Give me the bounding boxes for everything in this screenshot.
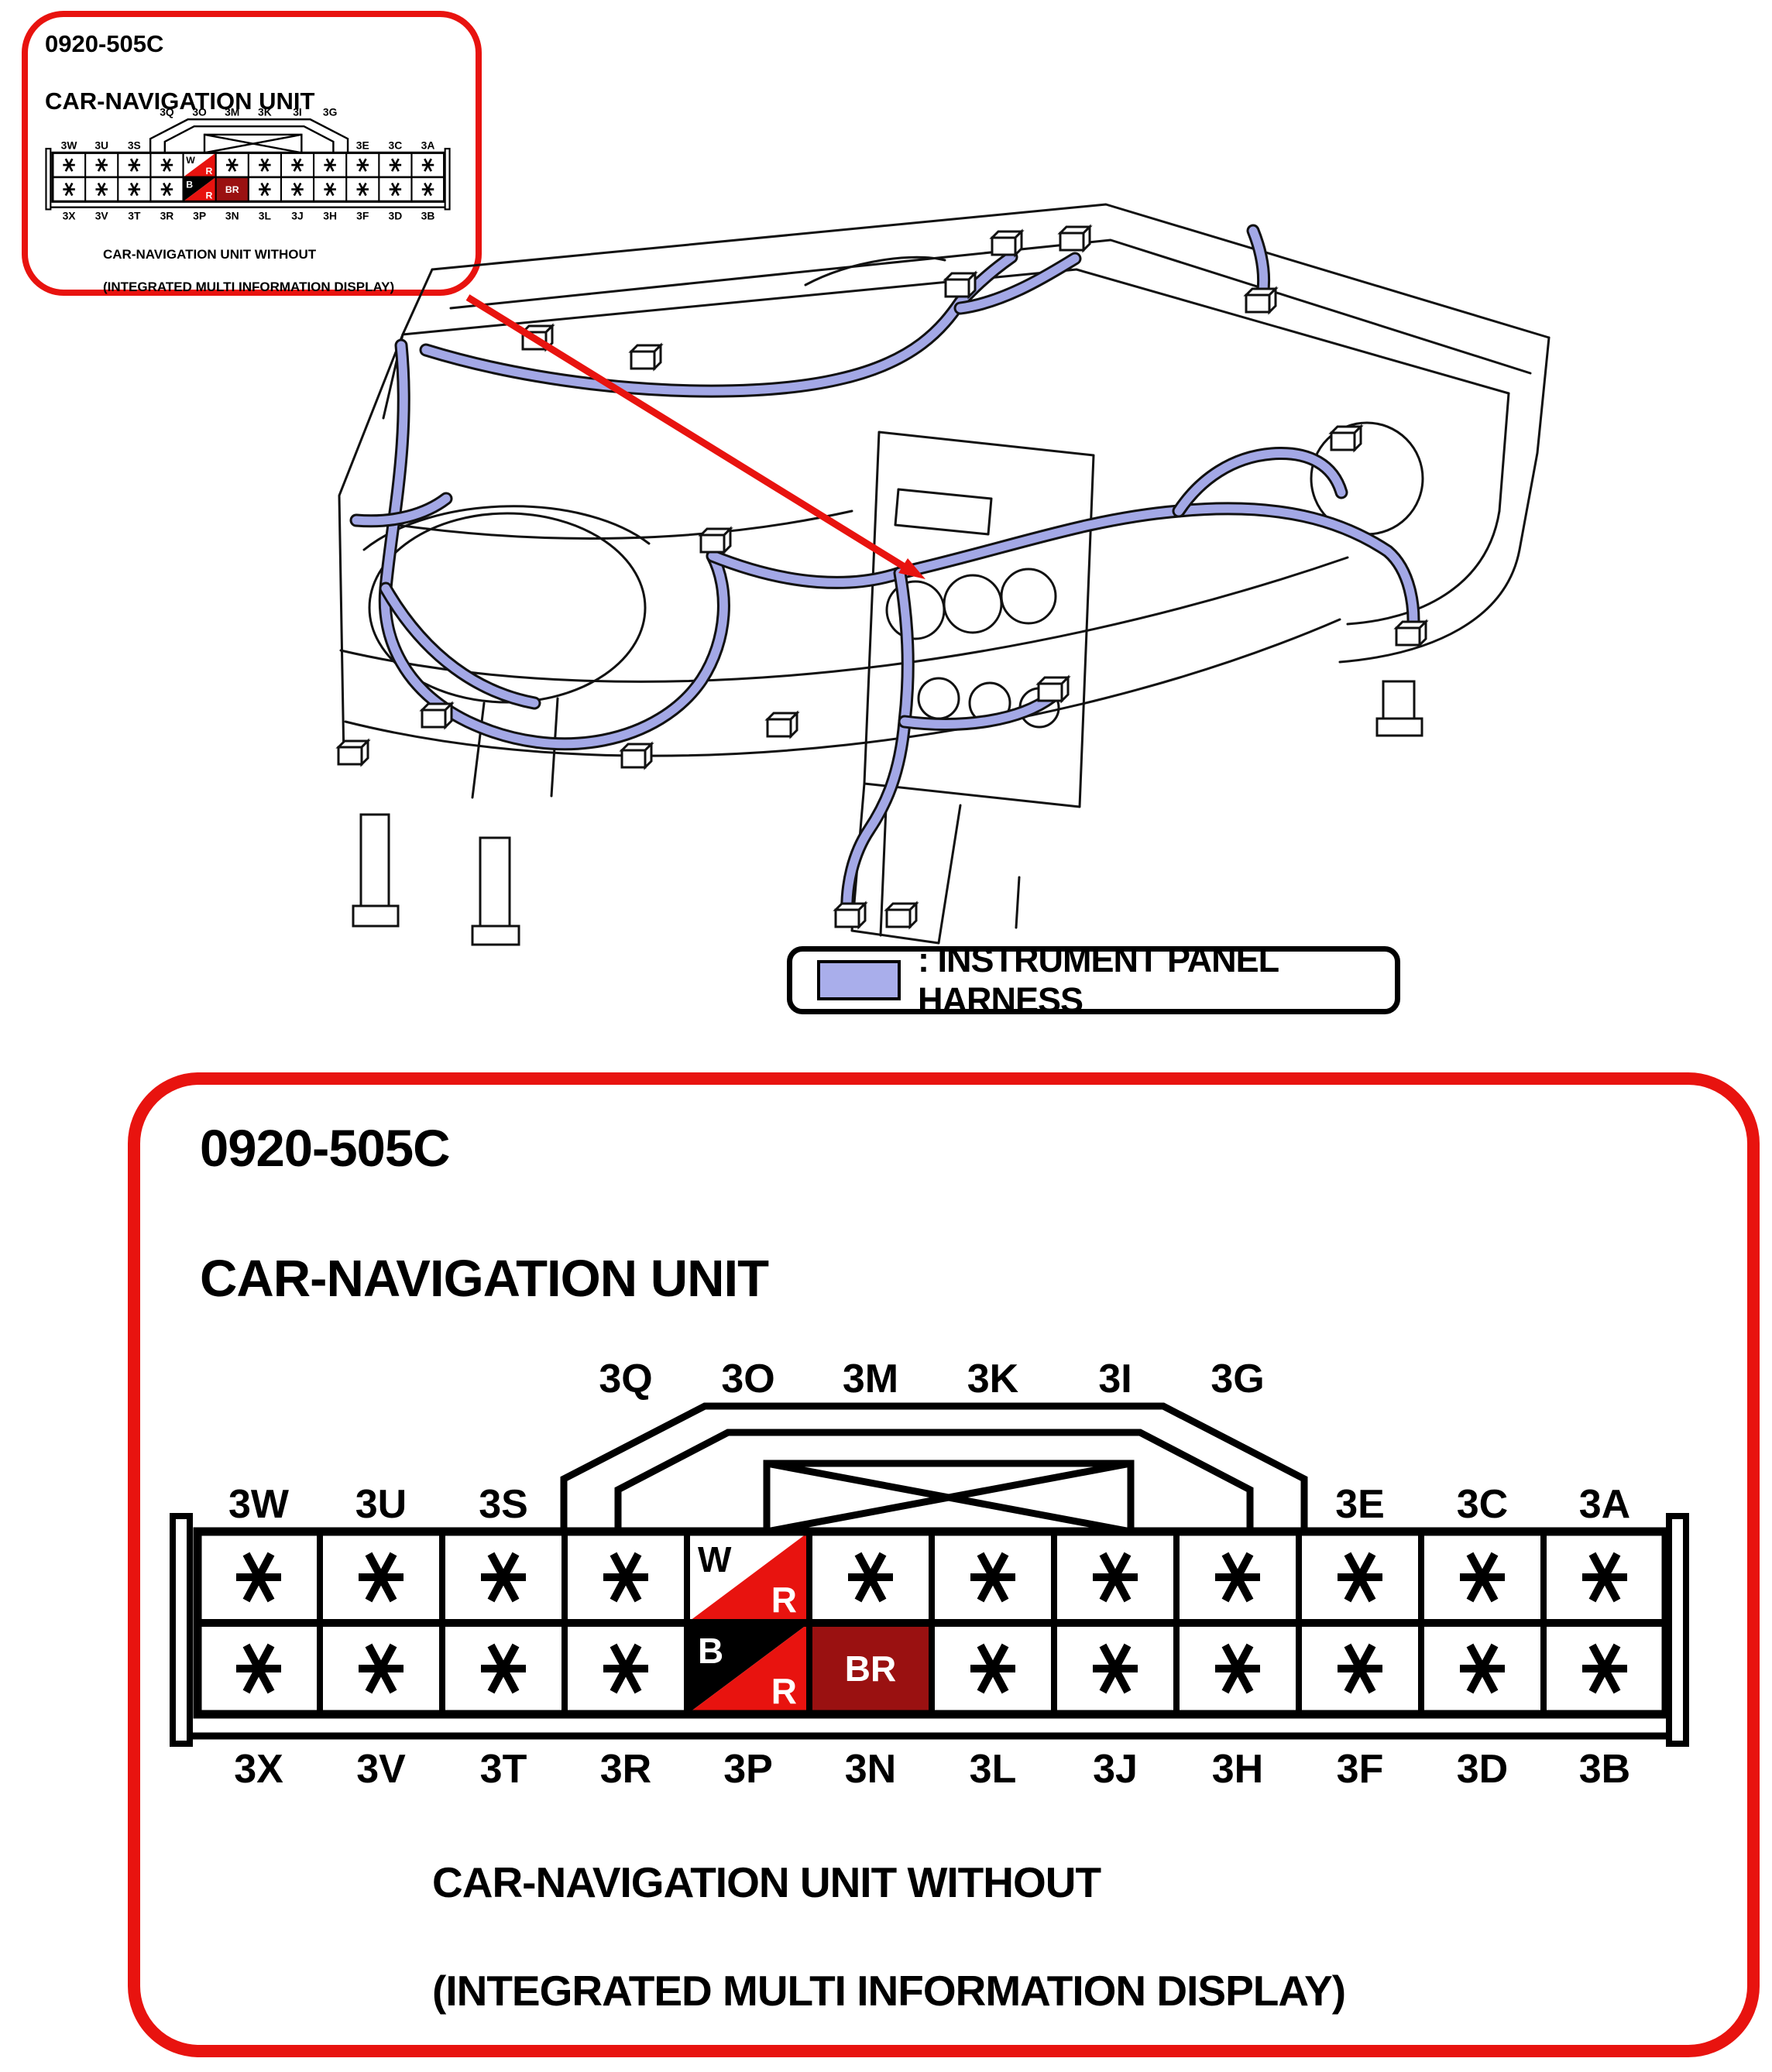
svg-text:BR: BR xyxy=(845,1648,896,1689)
pin-label-3S: 3S xyxy=(128,139,141,152)
unit-name-large: CAR-NAVIGATION UNIT xyxy=(200,1250,768,1308)
svg-text:R: R xyxy=(206,190,213,201)
svg-text:B: B xyxy=(698,1631,723,1671)
pin-label-3P: 3P xyxy=(193,210,206,222)
pin-label-3O: 3O xyxy=(721,1357,774,1401)
detail-caption: CAR-NAVIGATION UNIT WITHOUT (INTEGRATED … xyxy=(432,1855,1345,2018)
pin-label-3S: 3S xyxy=(479,1482,528,1527)
pin-label-3R: 3R xyxy=(160,210,174,222)
unit-code: 0920-505C xyxy=(45,30,163,57)
pin-label-3I: 3I xyxy=(1098,1357,1132,1401)
pin-label-3G: 3G xyxy=(323,105,338,118)
pin-label-3M: 3M xyxy=(843,1357,898,1401)
pin-label-3E: 3E xyxy=(356,139,369,152)
pin-label-3I: 3I xyxy=(293,105,302,118)
harness-color-swatch xyxy=(817,960,901,1000)
pin-label-3K: 3K xyxy=(258,105,272,118)
pin-label-3Q: 3Q xyxy=(599,1357,652,1401)
pin-label-3G: 3G xyxy=(1211,1357,1264,1401)
svg-text:R: R xyxy=(206,166,213,177)
pin-label-3K: 3K xyxy=(967,1357,1019,1401)
pin-label-3X: 3X xyxy=(63,210,77,222)
instrument-panel-harness-highlight xyxy=(356,231,1413,917)
pin-label-3V: 3V xyxy=(356,1747,406,1792)
pin-label-3F: 3F xyxy=(1337,1747,1384,1792)
svg-text:R: R xyxy=(771,1580,797,1620)
pin-label-3C: 3C xyxy=(389,139,403,152)
pin-label-3L: 3L xyxy=(970,1747,1017,1792)
pin-label-3W: 3W xyxy=(228,1482,290,1527)
pin-label-3L: 3L xyxy=(259,210,272,222)
svg-text:B: B xyxy=(186,180,193,190)
connector-pinout-main: WRBRBR3Q3O3M3K3I3G3W3U3S3E3C3A3X3V3T3R3P… xyxy=(116,1330,1743,1795)
pin-label-3V: 3V xyxy=(95,210,109,222)
pin-label-3R: 3R xyxy=(600,1747,651,1792)
pin-label-3U: 3U xyxy=(355,1482,407,1527)
pin-label-3D: 3D xyxy=(1457,1747,1508,1792)
mounting-legs xyxy=(353,681,1422,945)
legend-box: : INSTRUMENT PANEL HARNESS xyxy=(787,946,1400,1014)
pin-label-3P: 3P xyxy=(723,1747,773,1792)
pin-label-3H: 3H xyxy=(1212,1747,1263,1792)
pin-label-3J: 3J xyxy=(1093,1747,1138,1792)
pin-label-3T: 3T xyxy=(128,210,141,222)
pin-label-3C: 3C xyxy=(1457,1482,1508,1527)
pin-label-3N: 3N xyxy=(225,210,239,222)
unit-code-large: 0920-505C xyxy=(200,1120,450,1178)
pin-label-3O: 3O xyxy=(192,105,207,118)
pin-label-3B: 3B xyxy=(1579,1747,1630,1792)
pin-label-3W: 3W xyxy=(61,139,78,152)
pin-label-3Q: 3Q xyxy=(160,105,174,118)
pin-label-3E: 3E xyxy=(1335,1482,1385,1527)
svg-text:R: R xyxy=(771,1671,797,1711)
pin-label-3J: 3J xyxy=(291,210,303,222)
pin-label-3X: 3X xyxy=(234,1747,283,1792)
svg-text:W: W xyxy=(186,155,195,166)
pin-label-3A: 3A xyxy=(421,139,435,152)
pin-label-3U: 3U xyxy=(94,139,108,152)
dashboard-illustration xyxy=(310,186,1564,960)
pin-label-3A: 3A xyxy=(1579,1482,1630,1527)
legend-label: : INSTRUMENT PANEL HARNESS xyxy=(918,940,1395,1021)
pin-label-3N: 3N xyxy=(845,1747,896,1792)
pin-label-3T: 3T xyxy=(480,1747,527,1792)
detail-title: 0920-505C CAR-NAVIGATION UNIT xyxy=(200,1117,768,1312)
svg-text:BR: BR xyxy=(225,184,239,195)
pin-label-3M: 3M xyxy=(225,105,239,118)
svg-text:W: W xyxy=(698,1539,732,1580)
